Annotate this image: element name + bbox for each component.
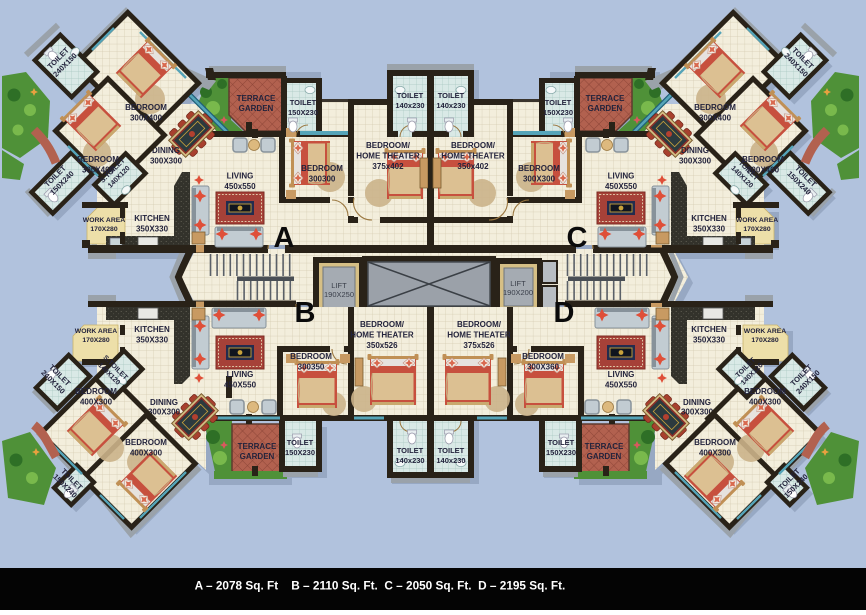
svg-text:TOILET: TOILET: [290, 98, 317, 107]
svg-text:TOILET: TOILET: [548, 438, 575, 447]
svg-text:KITCHEN: KITCHEN: [691, 214, 727, 223]
svg-text:WORK AREA: WORK AREA: [83, 217, 126, 224]
svg-text:150X230: 150X230: [285, 448, 315, 457]
svg-text:300X400: 300X400: [699, 114, 732, 123]
svg-text:A – 2078 Sq. Ft B – 2110 Sq: A – 2078 Sq. Ft B – 2110 Sq. Ft. C – 205…: [195, 579, 566, 593]
svg-text:170X280: 170X280: [743, 226, 770, 233]
svg-text:300X300: 300X300: [523, 175, 556, 184]
svg-text:BEDROOM: BEDROOM: [522, 352, 564, 361]
svg-text:350x526: 350x526: [366, 341, 398, 350]
svg-text:DINING: DINING: [683, 398, 711, 407]
svg-text:LIFT: LIFT: [510, 279, 526, 288]
svg-text:TERRACE: TERRACE: [237, 94, 276, 103]
svg-text:LIVING: LIVING: [608, 370, 635, 379]
svg-text:300X360: 300X360: [527, 363, 560, 372]
svg-text:300300: 300300: [309, 175, 336, 184]
svg-text:DINING: DINING: [152, 146, 180, 155]
svg-text:170X280: 170X280: [90, 226, 117, 233]
svg-text:BEDROOM: BEDROOM: [742, 155, 784, 164]
svg-text:LIVING: LIVING: [227, 370, 254, 379]
svg-text:375x526: 375x526: [463, 341, 495, 350]
svg-text:WORK AREA: WORK AREA: [736, 217, 779, 224]
svg-text:BEDROOM: BEDROOM: [694, 438, 736, 447]
svg-text:BEDROOM: BEDROOM: [694, 103, 736, 112]
svg-text:BEDROOM: BEDROOM: [290, 352, 332, 361]
svg-text:450x550: 450x550: [224, 182, 256, 191]
svg-text:350x402: 350x402: [457, 162, 489, 171]
svg-text:300X400: 300X400: [130, 114, 163, 123]
svg-text:300X300: 300X300: [150, 157, 183, 166]
svg-text:WORK AREA: WORK AREA: [744, 328, 787, 335]
svg-text:HOME THEATER: HOME THEATER: [350, 331, 414, 340]
svg-text:BEDROOM: BEDROOM: [75, 387, 117, 396]
svg-text:B: B: [295, 297, 316, 329]
svg-text:150X230: 150X230: [546, 448, 576, 457]
svg-text:LIFT: LIFT: [331, 281, 347, 290]
svg-text:190X250: 190X250: [324, 290, 354, 299]
svg-text:HOME THEATER: HOME THEATER: [447, 331, 511, 340]
svg-text:KITCHEN: KITCHEN: [691, 325, 727, 334]
svg-text:GARDEN: GARDEN: [588, 104, 623, 113]
svg-text:350X330: 350X330: [693, 225, 726, 234]
svg-text:BEDROOM: BEDROOM: [77, 155, 119, 164]
svg-text:300X300: 300X300: [679, 157, 712, 166]
svg-text:LIVING: LIVING: [227, 172, 254, 181]
svg-text:140x230: 140x230: [436, 456, 465, 465]
svg-text:KITCHEN: KITCHEN: [134, 214, 170, 223]
svg-text:BEDROOM/: BEDROOM/: [366, 141, 411, 150]
svg-text:375x402: 375x402: [372, 162, 404, 171]
svg-text:170X280: 170X280: [751, 337, 778, 344]
svg-text:350X330: 350X330: [136, 225, 169, 234]
svg-text:350X330: 350X330: [136, 336, 169, 345]
svg-text:BEDROOM: BEDROOM: [125, 103, 167, 112]
svg-text:KITCHEN: KITCHEN: [134, 325, 170, 334]
svg-text:BEDROOM/: BEDROOM/: [457, 320, 502, 329]
svg-text:140x230: 140x230: [436, 101, 465, 110]
svg-text:TOILET: TOILET: [545, 98, 572, 107]
svg-text:140x230: 140x230: [395, 101, 424, 110]
svg-text:350X330: 350X330: [693, 336, 726, 345]
svg-text:400X300: 400X300: [749, 398, 782, 407]
svg-text:TOILET: TOILET: [397, 446, 424, 455]
svg-text:WORK AREA: WORK AREA: [75, 328, 118, 335]
svg-text:TOILET: TOILET: [397, 91, 424, 100]
svg-text:HOME THEATER: HOME THEATER: [441, 152, 505, 161]
svg-text:TOILET: TOILET: [438, 91, 465, 100]
svg-text:TOILET: TOILET: [287, 438, 314, 447]
svg-text:150X230: 150X230: [288, 108, 318, 117]
svg-text:TERRACE: TERRACE: [585, 442, 624, 451]
svg-text:BEDROOM: BEDROOM: [744, 387, 786, 396]
svg-text:300350: 300350: [298, 363, 325, 372]
svg-text:BEDROOM/: BEDROOM/: [451, 141, 496, 150]
svg-text:D: D: [554, 297, 575, 329]
svg-text:C: C: [567, 222, 588, 254]
svg-text:DINING: DINING: [150, 398, 178, 407]
svg-text:GARDEN: GARDEN: [587, 452, 622, 461]
svg-text:170X280: 170X280: [82, 337, 109, 344]
svg-text:BEDROOM: BEDROOM: [518, 164, 560, 173]
svg-text:140x230: 140x230: [395, 456, 424, 465]
svg-text:HOME THEATER: HOME THEATER: [356, 152, 420, 161]
svg-text:GARDEN: GARDEN: [239, 104, 274, 113]
svg-text:400X300: 400X300: [130, 449, 163, 458]
svg-text:TERRACE: TERRACE: [238, 442, 277, 451]
svg-text:BEDROOM: BEDROOM: [301, 164, 343, 173]
svg-text:A: A: [274, 222, 295, 254]
svg-text:LIVING: LIVING: [608, 172, 635, 181]
svg-text:190X200: 190X200: [503, 288, 533, 297]
svg-text:450X550: 450X550: [605, 381, 638, 390]
svg-text:DINING: DINING: [681, 146, 709, 155]
svg-text:400X300: 400X300: [699, 449, 732, 458]
svg-text:450X550: 450X550: [224, 381, 257, 390]
svg-text:BEDROOM/: BEDROOM/: [360, 320, 405, 329]
svg-text:BEDROOM: BEDROOM: [125, 438, 167, 447]
svg-text:TERRACE: TERRACE: [586, 94, 625, 103]
svg-text:450X550: 450X550: [605, 182, 638, 191]
svg-text:150X230: 150X230: [543, 108, 573, 117]
svg-text:GARDEN: GARDEN: [240, 452, 275, 461]
svg-text:400X300: 400X300: [80, 398, 113, 407]
svg-text:TOILET: TOILET: [438, 446, 465, 455]
